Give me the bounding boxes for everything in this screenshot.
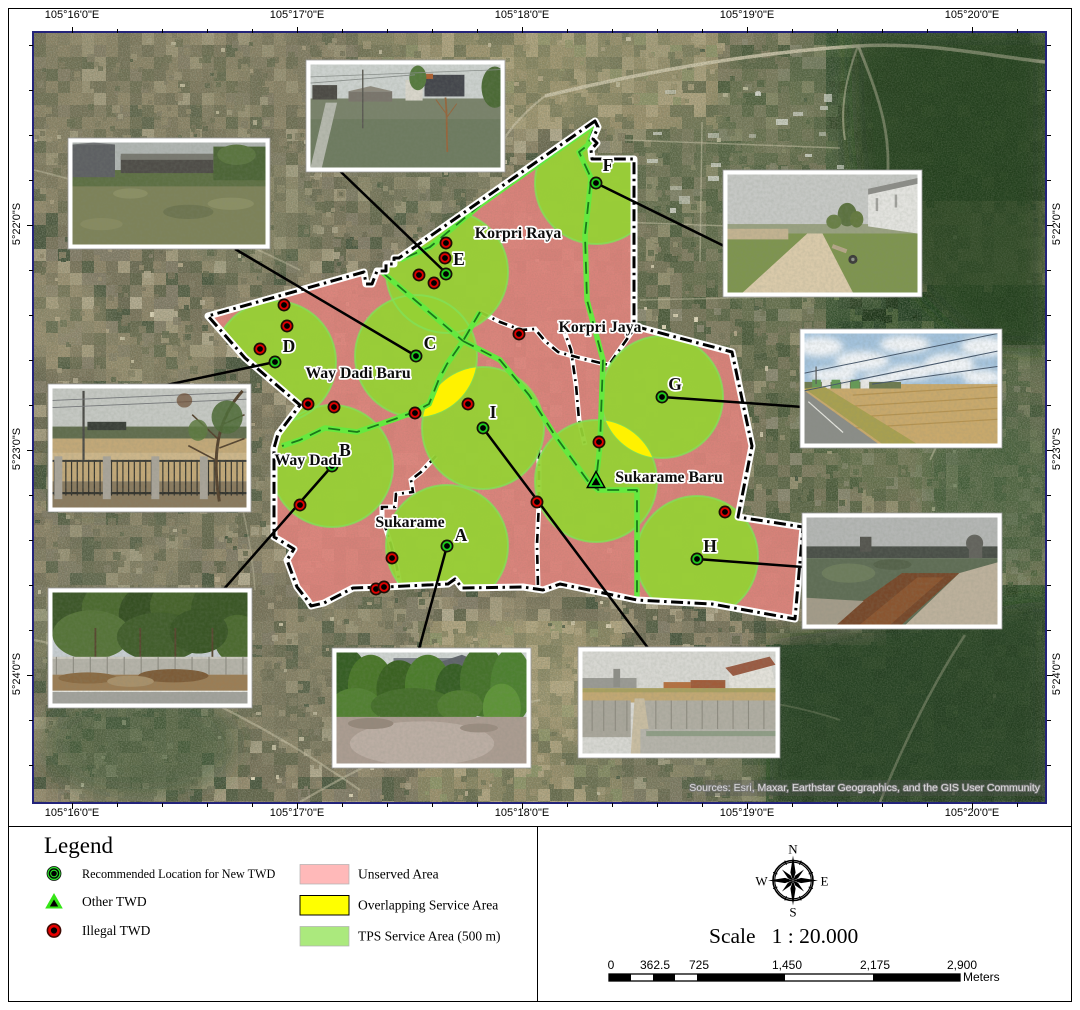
svg-text:Sources: Esri, Maxar, Earthsta: Sources: Esri, Maxar, Earthstar Geograph… [689, 782, 1040, 794]
svg-text:Unserved Area: Unserved Area [358, 867, 439, 882]
svg-text:1,450: 1,450 [772, 958, 802, 972]
svg-text:D: D [283, 336, 296, 356]
svg-text:N: N [788, 842, 798, 857]
svg-text:Sukarame Baru: Sukarame Baru [615, 469, 723, 486]
svg-text:W: W [755, 874, 768, 889]
svg-text:Legend: Legend [44, 833, 113, 858]
svg-text:2,175: 2,175 [860, 958, 890, 972]
svg-text:H: H [703, 536, 717, 556]
svg-text:S: S [789, 905, 796, 920]
svg-text:Meters: Meters [963, 970, 1000, 984]
svg-text:Korpri Raya: Korpri Raya [475, 225, 562, 242]
svg-text:C: C [424, 333, 437, 353]
svg-text:G: G [668, 374, 682, 394]
svg-text:E: E [453, 249, 465, 269]
svg-text:362.5: 362.5 [640, 958, 670, 972]
svg-text:Korpri Jaya: Korpri Jaya [559, 319, 642, 336]
svg-text:Recommended Location for New T: Recommended Location for New TWD [82, 867, 276, 881]
svg-text:Scale 1 : 20.000: Scale 1 : 20.000 [709, 924, 858, 948]
svg-text:Illegal TWD: Illegal TWD [82, 923, 151, 938]
svg-text:Other TWD: Other TWD [82, 894, 147, 909]
svg-text:Way Dadi: Way Dadi [274, 452, 342, 469]
svg-text:A: A [455, 525, 468, 545]
svg-text:F: F [603, 155, 614, 175]
svg-text:E: E [821, 874, 829, 889]
svg-text:TPS Service Area (500 m): TPS Service Area (500 m) [358, 929, 500, 944]
svg-text:725: 725 [689, 958, 709, 972]
svg-text:Overlapping Service Area: Overlapping Service Area [358, 898, 498, 913]
svg-text:Sukarame: Sukarame [375, 514, 444, 531]
svg-text:I: I [490, 402, 497, 422]
svg-text:0: 0 [608, 958, 615, 972]
svg-text:B: B [339, 440, 351, 460]
svg-text:Way Dadi Baru: Way Dadi Baru [305, 365, 411, 382]
